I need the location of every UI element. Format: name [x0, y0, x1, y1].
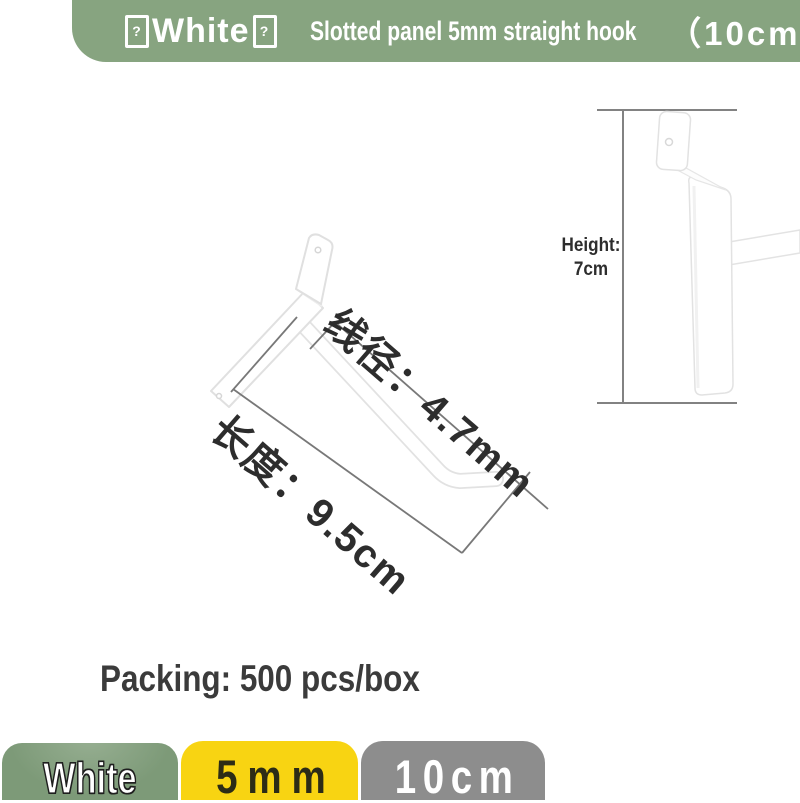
side-view-hook — [656, 111, 800, 395]
main-hook-plate — [211, 291, 323, 407]
main-hook-hole-bottom — [217, 394, 222, 399]
side-hook-hole — [666, 139, 673, 146]
height-label: Height: — [561, 234, 620, 258]
main-hook-hole-top — [315, 247, 321, 253]
side-hook-rod — [729, 230, 800, 265]
side-hook-tab — [656, 111, 691, 171]
height-label-box: Height: 7cm — [561, 234, 620, 282]
height-value: 7cm — [561, 258, 620, 282]
